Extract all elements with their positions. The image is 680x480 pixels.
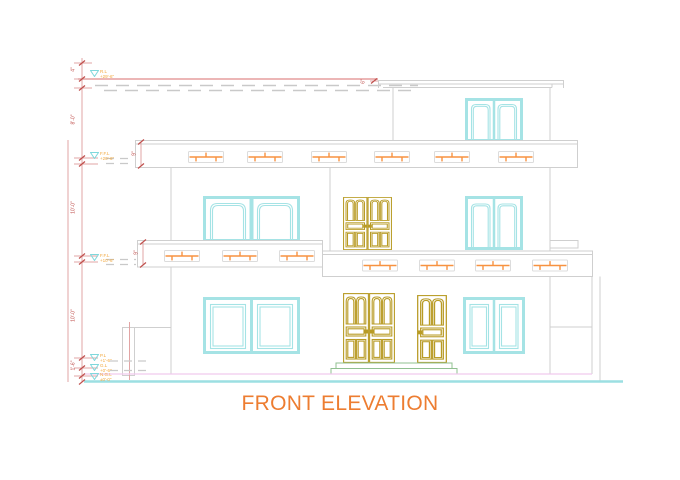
level-value: +10'-6" <box>100 259 114 264</box>
entrance-steps <box>331 363 457 374</box>
upper-right-window <box>467 198 522 249</box>
level-value: +29'-6" <box>100 75 114 80</box>
level-marker-natural-ground: N.G.L±0'-0" <box>90 373 112 383</box>
vent-bracket <box>165 251 200 262</box>
vent-bracket <box>363 260 398 271</box>
level-triangle-icon <box>90 70 99 77</box>
level-triangle-icon <box>90 354 99 361</box>
drawing-title: FRONT ELEVATION <box>0 392 680 416</box>
upper-left-window <box>205 198 299 241</box>
dimension-chain <box>68 58 378 385</box>
vent-bracket <box>476 260 511 271</box>
dimension-label-parapet: 4" <box>72 55 77 85</box>
left-boundary-pillar <box>123 322 172 380</box>
level-value: +20'-6" <box>100 157 114 162</box>
level-triangle-icon <box>90 373 99 380</box>
main-entrance-door <box>344 294 395 363</box>
vent-bracket <box>420 260 455 271</box>
level-triangle-icon <box>90 364 99 371</box>
mid-slab-band <box>138 240 323 268</box>
vent-bracket <box>375 152 410 163</box>
dimension-label-first-floor: 10'-0" <box>72 193 77 223</box>
vent-bracket <box>499 152 534 163</box>
ground-left-window <box>205 299 299 354</box>
elevation-drawing-canvas: FRONT ELEVATION R.L+29'-6" F.F.L+20'-6" … <box>0 0 680 480</box>
vent-bracket <box>223 251 258 262</box>
dimension-label-slab-band-upper: 9" <box>133 139 138 169</box>
stair-room-window <box>467 100 522 141</box>
level-marker-first-floor: F.F.L+10'-6" <box>90 254 114 264</box>
level-triangle-icon <box>90 254 99 261</box>
hidden-roof-line <box>95 86 418 91</box>
dimension-label-plinth: 1'-6" <box>72 351 77 381</box>
dimension-label-ground-floor: 10'-0" <box>72 301 77 331</box>
upper-slab-band <box>136 140 578 169</box>
level-marker-roof: R.L+29'-6" <box>90 70 114 80</box>
vent-bracket <box>248 152 283 163</box>
stair-room-roof-slab <box>379 81 564 89</box>
upper-door <box>344 197 392 249</box>
dimension-label-upper-floor: 8'-0" <box>72 105 77 135</box>
vent-bracket <box>189 152 224 163</box>
level-value: ±0'-0" <box>100 378 112 383</box>
vent-bracket <box>280 251 315 262</box>
porch-slab-band <box>323 251 593 277</box>
level-triangle-icon <box>90 152 99 159</box>
vent-bracket <box>312 152 347 163</box>
dimension-label-slab-band-mid: 9" <box>135 238 140 268</box>
vent-bracket <box>435 152 470 163</box>
mid-slab-stub-right <box>550 241 578 249</box>
ground-right-window <box>465 299 524 354</box>
vent-bracket <box>533 260 568 271</box>
dimension-label-mumty-slab: 6" <box>362 67 367 97</box>
level-marker-terrace: F.F.L+20'-6" <box>90 152 114 162</box>
side-entrance-door <box>418 296 447 363</box>
